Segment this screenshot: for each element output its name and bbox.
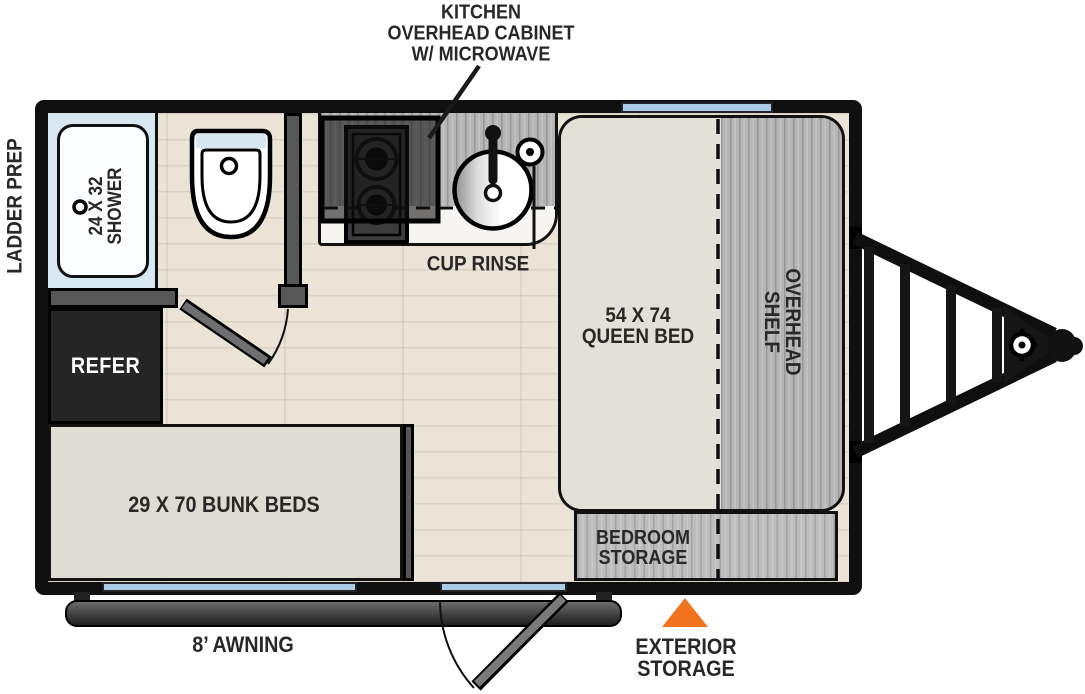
kitchen-overhead-cabinet	[322, 118, 438, 221]
exterior-storage-label: EXTERIOR STORAGE	[635, 636, 736, 680]
door-swing-arc	[440, 601, 474, 688]
flush-button	[222, 159, 237, 174]
shower-label: 24 X 32 SHOWER	[87, 168, 125, 245]
entry-door	[440, 597, 564, 688]
sink-drain	[486, 186, 501, 201]
kitchen-callout-leader-line	[429, 66, 479, 138]
kitchen-overhead-callout: KITCHEN OVERHEAD CABINET W/ MICROWAVE	[387, 3, 574, 66]
awning-label: 8’ AWNING	[192, 634, 294, 656]
ladder-prep-label: LADDER PREP	[5, 138, 26, 273]
queen-bed-label: 54 X 74 QUEEN BED	[582, 305, 694, 347]
toilet	[192, 131, 270, 237]
exterior-storage-marker	[662, 598, 708, 627]
trailer-tongue	[849, 227, 1083, 463]
kitchen-sink	[455, 125, 543, 249]
hitch-ball	[1065, 337, 1083, 355]
faucet-head	[485, 125, 501, 141]
cup-rinse-label: CUP RINSE	[427, 254, 530, 275]
rv-floorplan: REFER	[0, 0, 1085, 694]
bunk-beds-label: 29 X 70 BUNK BEDS	[128, 494, 319, 516]
door-swing-arc	[268, 309, 288, 364]
overhead-shelf-label: OVERHEAD SHELF	[761, 268, 803, 375]
bathroom-door	[183, 304, 288, 364]
shower-drain	[74, 201, 86, 213]
fixtures-overlay	[0, 0, 1085, 694]
bedroom-storage-label: BEDROOM STORAGE	[596, 528, 690, 568]
